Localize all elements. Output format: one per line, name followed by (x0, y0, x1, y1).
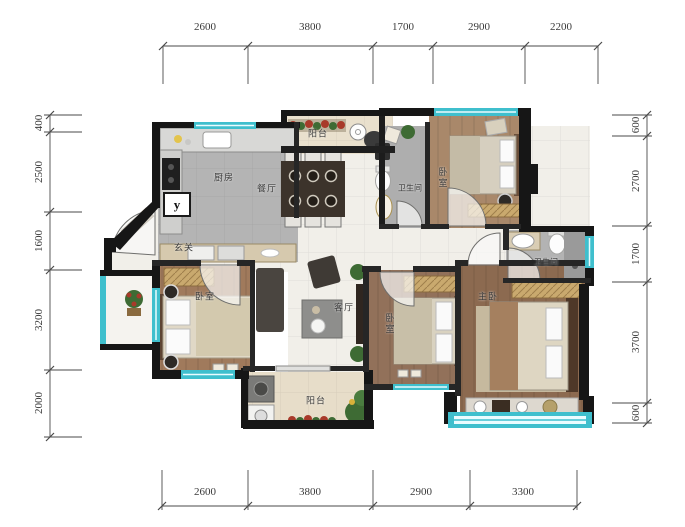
bay-window (448, 412, 592, 428)
window (434, 108, 518, 116)
dim-right-5: 600 (630, 405, 642, 422)
dim-right-1: 600 (630, 117, 642, 134)
label-balcony-top: 阳台 (308, 127, 328, 140)
dining-table (281, 152, 345, 227)
sliding-door (276, 366, 330, 371)
stove-icon (162, 158, 180, 190)
toilet-icon (549, 234, 565, 254)
dim-top-5: 2200 (550, 21, 572, 33)
label-bath-right: 卫生间 (534, 257, 558, 268)
basin-icon (512, 234, 534, 248)
dim-left-lines (44, 111, 82, 441)
washer-icon (350, 124, 366, 140)
floor-plan-drawing (0, 0, 685, 527)
dim-left-3: 1600 (33, 230, 45, 252)
dim-right-3: 1700 (630, 243, 642, 265)
dim-bottom-1: 2600 (194, 486, 216, 498)
dim-right-4: 3700 (630, 331, 642, 353)
dim-left-5: 2000 (33, 392, 45, 414)
dim-top-3: 1700 (392, 21, 414, 33)
window (393, 384, 449, 390)
plant-icon (401, 125, 415, 139)
label-balcony-bottom: 阳台 (306, 394, 326, 407)
label-dining: 餐厅 (257, 182, 277, 195)
dim-top-lines (159, 42, 602, 84)
y-marker-label: y (174, 197, 181, 213)
label-master: 主卧 (478, 290, 498, 303)
dim-bottom-3: 2900 (410, 486, 432, 498)
dim-left-2: 2500 (33, 161, 45, 183)
dim-top-1: 2600 (194, 21, 216, 33)
label-bath-top: 卫生间 (398, 183, 422, 194)
y-marker: y (163, 192, 191, 217)
label-living: 客厅 (334, 301, 354, 314)
floor-plan-image: 2600 3800 1700 2900 2200 2600 3800 2900 … (0, 0, 685, 527)
dim-bottom-4: 3300 (512, 486, 534, 498)
sink-icon (203, 132, 231, 148)
side-ledge-items (125, 290, 143, 316)
dim-top-2: 3800 (299, 21, 321, 33)
label-bedroom-top-right: 卧室 (437, 167, 450, 189)
dim-top-4: 2900 (468, 21, 490, 33)
window (152, 288, 160, 342)
label-bedroom-left: 卧室 (195, 290, 215, 303)
label-kitchen: 厨房 (214, 171, 234, 184)
window (181, 370, 235, 379)
window (585, 236, 594, 268)
dim-right-2: 2700 (630, 170, 642, 192)
label-bedroom-mid: 卧室 (384, 313, 397, 335)
label-entry: 玄关 (174, 241, 194, 254)
dim-bottom-2: 3800 (299, 486, 321, 498)
sofa-icon (256, 268, 284, 332)
dim-right-lines (612, 111, 652, 427)
window (100, 276, 106, 344)
window (194, 122, 256, 129)
dim-left-1: 400 (33, 115, 45, 132)
dim-left-4: 3200 (33, 309, 45, 331)
